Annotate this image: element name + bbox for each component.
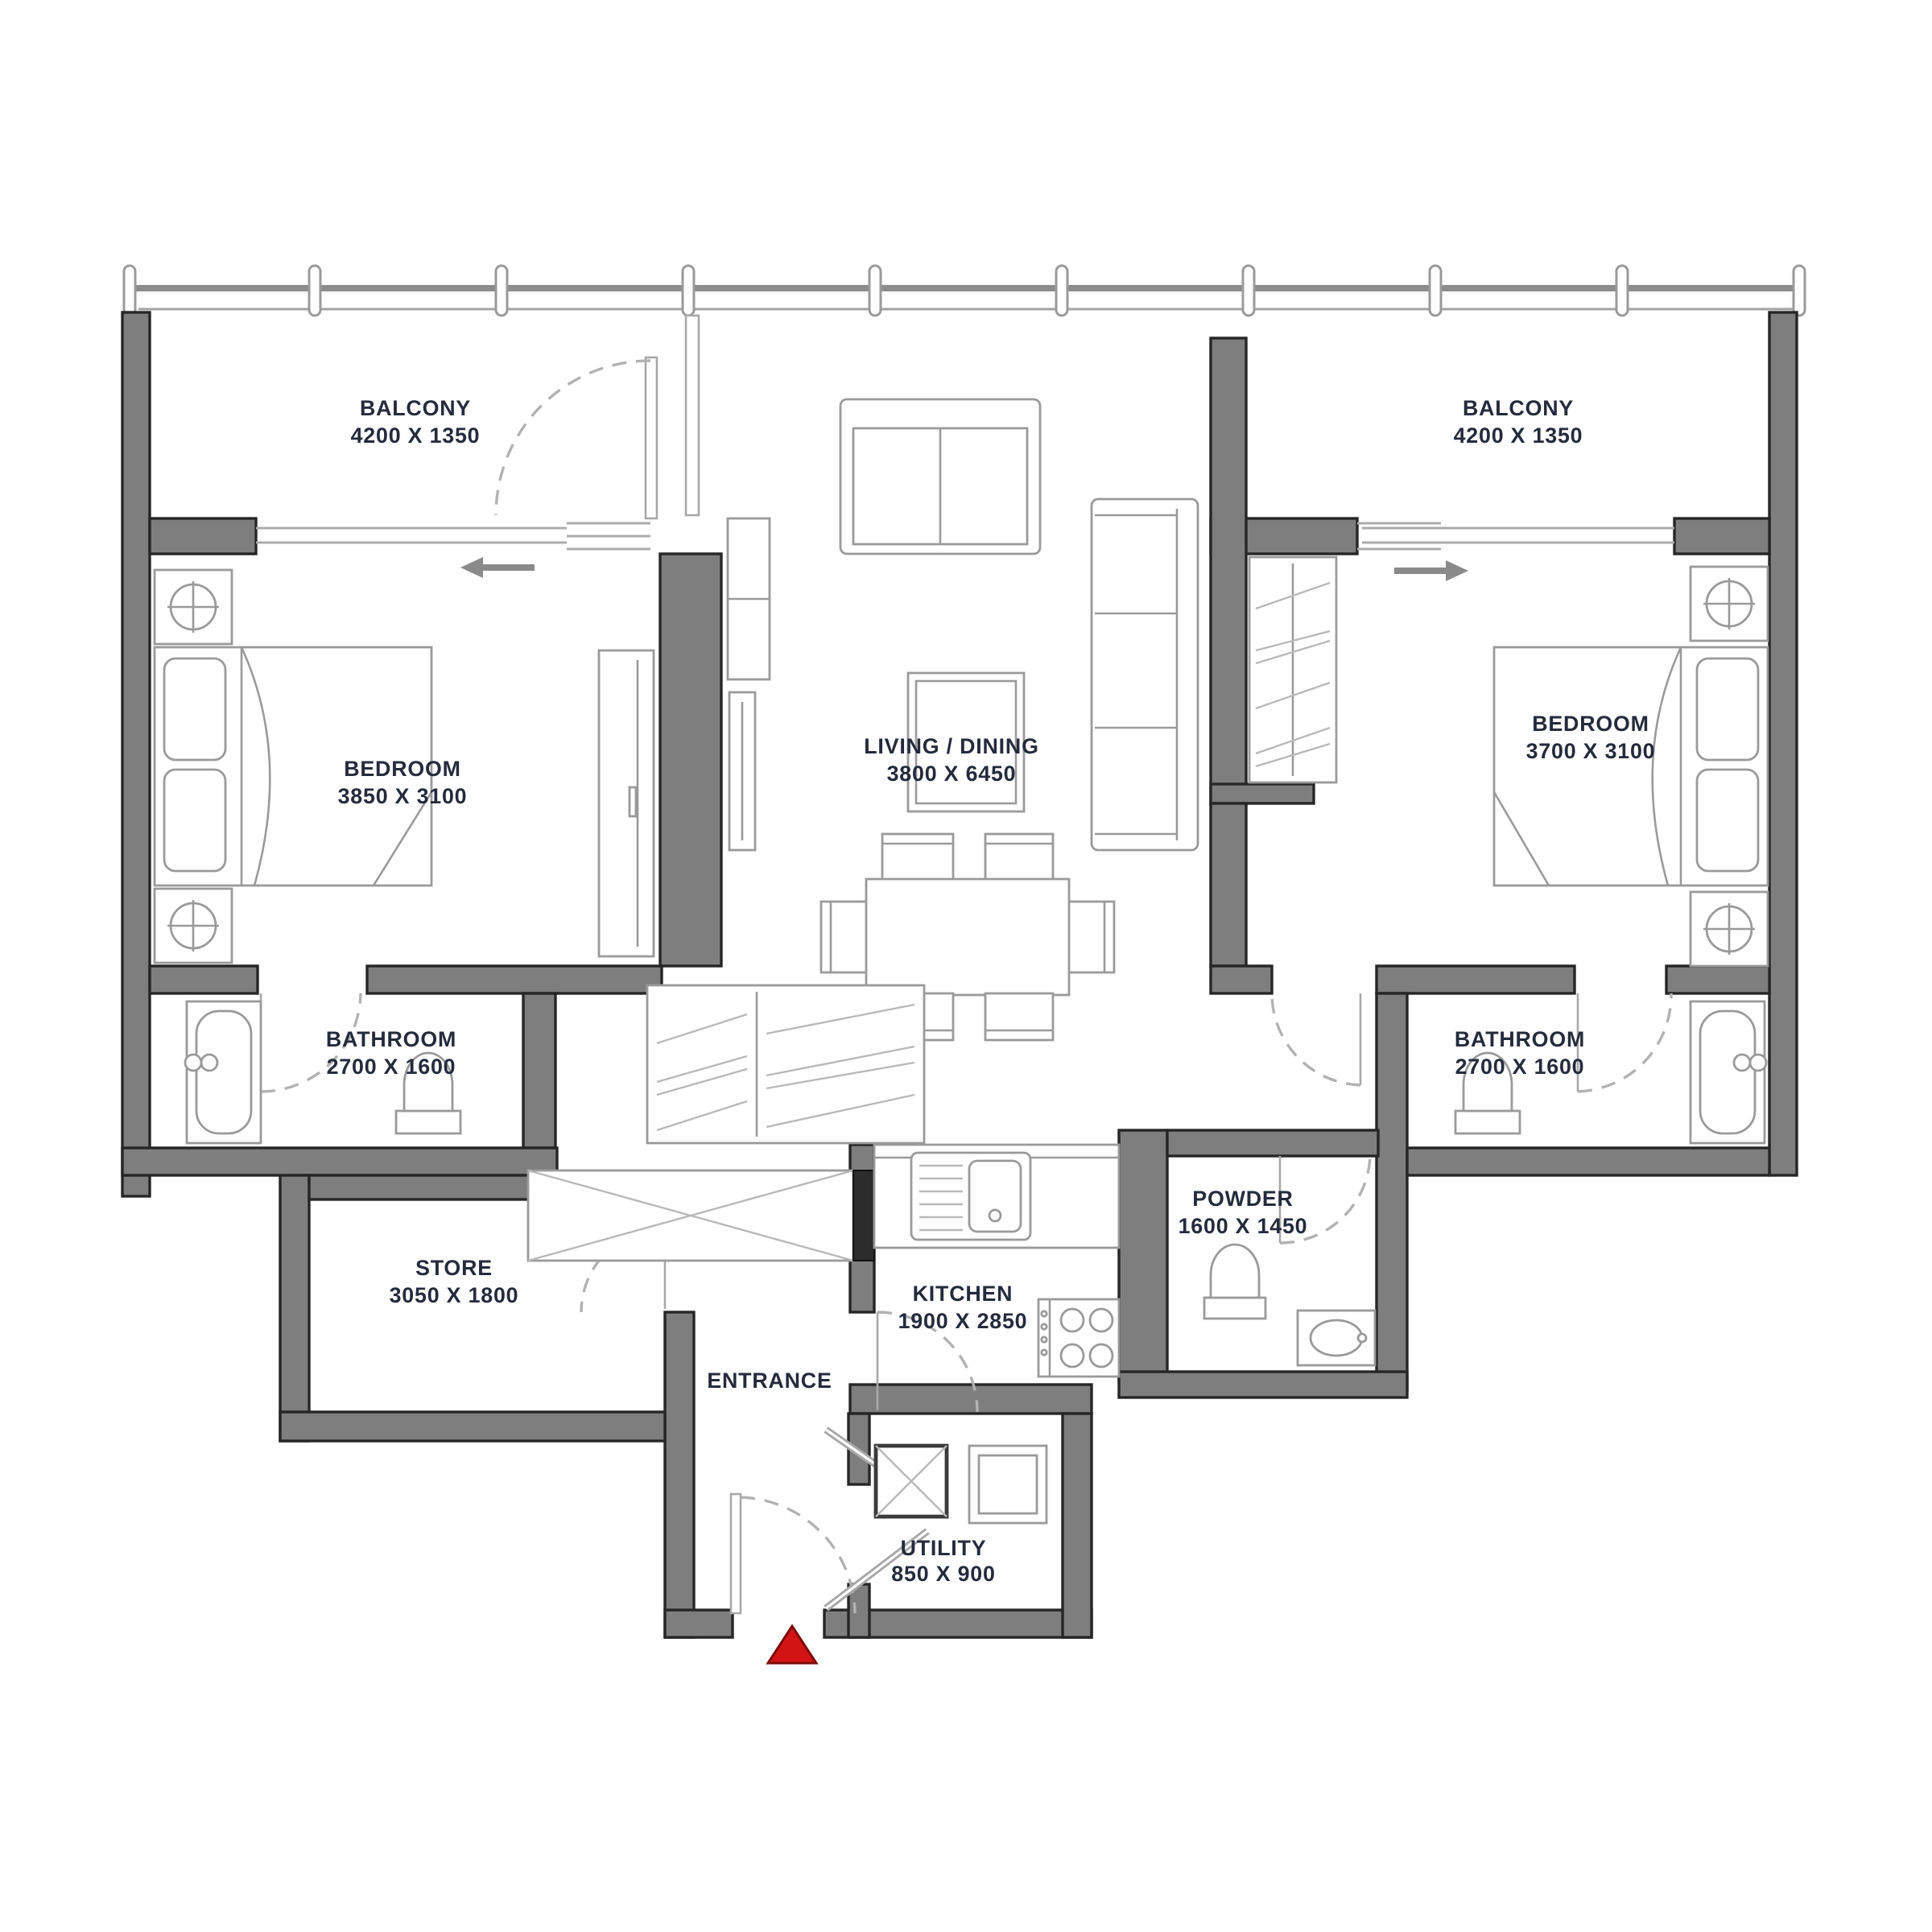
wall-powder-bottom: [1119, 1372, 1407, 1397]
wall-living-right-lower: [1211, 803, 1246, 966]
wall-bedl-band-a: [150, 966, 258, 993]
floor-plan-page: BALCONY 4200 X 1350 BALCONY 4200 X 1350 …: [0, 0, 1932, 1932]
label-entrance: ENTRANCE: [707, 1368, 832, 1393]
toilet-icon: [1204, 1245, 1265, 1319]
wall-utility-east: [1063, 1414, 1092, 1637]
wall-bathr-bottom: [1407, 1148, 1769, 1175]
sofa-top-icon: [840, 399, 1040, 554]
wall-powder-top: [1167, 1130, 1378, 1156]
label-powder-dims: 1600 X 1450: [1179, 1214, 1308, 1238]
sofa-side-icon: [1092, 499, 1198, 850]
label-kitchen-name: KITCHEN: [913, 1282, 1013, 1306]
washer-icon: [969, 1446, 1046, 1523]
sink-icon: [1298, 1311, 1375, 1365]
duct-x-icon: [876, 1446, 947, 1517]
wardrobe-hatch-icon: [1249, 557, 1336, 782]
label-balcony-left-name: BALCONY: [360, 396, 471, 420]
label-powder-name: POWDER: [1192, 1187, 1293, 1211]
entrance-door: [731, 1494, 855, 1613]
label-bedroom-right-dims: 3700 X 3100: [1526, 739, 1656, 763]
powder-fixtures: [1204, 1245, 1375, 1365]
dining-chair-icon: [985, 834, 1053, 881]
corridor-closets: [528, 985, 924, 1261]
label-bathroom-left-dims: 2700 X 1600: [327, 1055, 456, 1079]
arrow-right-icon: [1394, 560, 1468, 581]
wall-bedr-band-a: [1211, 966, 1272, 993]
wall-bedr-band-c: [1666, 966, 1769, 993]
wall-pier-right-balcony: [1674, 518, 1769, 554]
label-living-name: LIVING / DINING: [864, 734, 1038, 758]
wall-kitchen-bottom: [850, 1385, 1092, 1414]
stove-icon: [1038, 1299, 1119, 1377]
label-utility-name: UTILITY: [901, 1536, 987, 1560]
window-bedroom-right: [1357, 523, 1674, 549]
label-bedroom-right-name: BEDROOM: [1532, 712, 1649, 736]
dining-chair-icon: [985, 993, 1053, 1040]
label-utility-dims: 850 X 900: [891, 1562, 995, 1586]
wall-bathl-bottom: [122, 1148, 557, 1175]
dining-table-icon: [866, 879, 1069, 995]
tv-unit-icon: [728, 518, 770, 850]
label-balcony-right-name: BALCONY: [1463, 396, 1574, 420]
bathtub-icon: [1690, 1001, 1766, 1143]
dining-chair-icon: [882, 834, 953, 881]
bedroom-right-entry-door: [1272, 993, 1360, 1085]
bed-icon: [1494, 647, 1768, 885]
closet-x-icon: [528, 1170, 874, 1261]
wall-left-outer: [122, 312, 150, 1196]
kitchen-sink-icon: [911, 1153, 1030, 1240]
balcony-left-door: [496, 357, 657, 518]
bathtub-icon: [185, 1001, 261, 1143]
label-kitchen-dims: 1900 X 2850: [898, 1309, 1028, 1333]
label-store-name: STORE: [415, 1256, 493, 1280]
wall-entry-bottom-a: [665, 1610, 733, 1637]
window-bedroom-left: [256, 523, 650, 549]
bedroom-right-furniture: [1249, 557, 1768, 966]
entrance-marker-icon: [768, 1626, 816, 1663]
wall-living-right-upper: [1211, 338, 1246, 805]
label-bedroom-left-dims: 3850 X 3100: [338, 784, 468, 808]
arrow-left-icon: [460, 557, 535, 578]
label-store-dims: 3050 X 1800: [390, 1283, 519, 1307]
wall-bedroom-left-east: [660, 554, 721, 966]
wall-store-west: [280, 1175, 309, 1441]
wall-bathl-east: [523, 993, 555, 1148]
balcony-railing: [124, 266, 1805, 316]
dining-chair-icon: [1067, 902, 1114, 972]
label-bathroom-left-name: BATHROOM: [326, 1027, 456, 1051]
wall-bedr-band-b: [1377, 966, 1575, 993]
label-bedroom-left-name: BEDROOM: [344, 757, 461, 781]
label-living-dims: 3800 X 6450: [887, 762, 1017, 786]
wall-store-east-entry-west: [665, 1312, 694, 1637]
balcony-door-frame-living: [686, 316, 699, 515]
label-bathroom-right-dims: 2700 X 1600: [1455, 1055, 1585, 1079]
wardrobe-icon: [599, 650, 654, 956]
floor-plan-drawing: BALCONY 4200 X 1350 BALCONY 4200 X 1350 …: [0, 0, 1932, 1932]
ensuite-right-door: [1578, 993, 1671, 1092]
closet-hatch-icon: [647, 985, 924, 1143]
wall-right-niche-stub: [1211, 784, 1314, 803]
wall-bedl-band-b: [367, 966, 662, 993]
wall-right-outer: [1769, 312, 1797, 1175]
kitchen-fixtures: [874, 1145, 1119, 1377]
dining-chair-icon: [821, 902, 868, 972]
label-balcony-right-dims: 4200 X 1350: [1454, 423, 1583, 448]
living-furniture: [728, 399, 1198, 1040]
wall-pier-left-balcony: [150, 518, 256, 554]
label-balcony-left-dims: 4200 X 1350: [351, 423, 481, 448]
utility-fixtures: [876, 1446, 1046, 1523]
wall-kitchen-powder: [1119, 1130, 1167, 1381]
wall-store-bottom: [280, 1412, 665, 1441]
wall-bathr-west-powder-east: [1377, 993, 1407, 1391]
label-bathroom-right-name: BATHROOM: [1455, 1027, 1585, 1051]
